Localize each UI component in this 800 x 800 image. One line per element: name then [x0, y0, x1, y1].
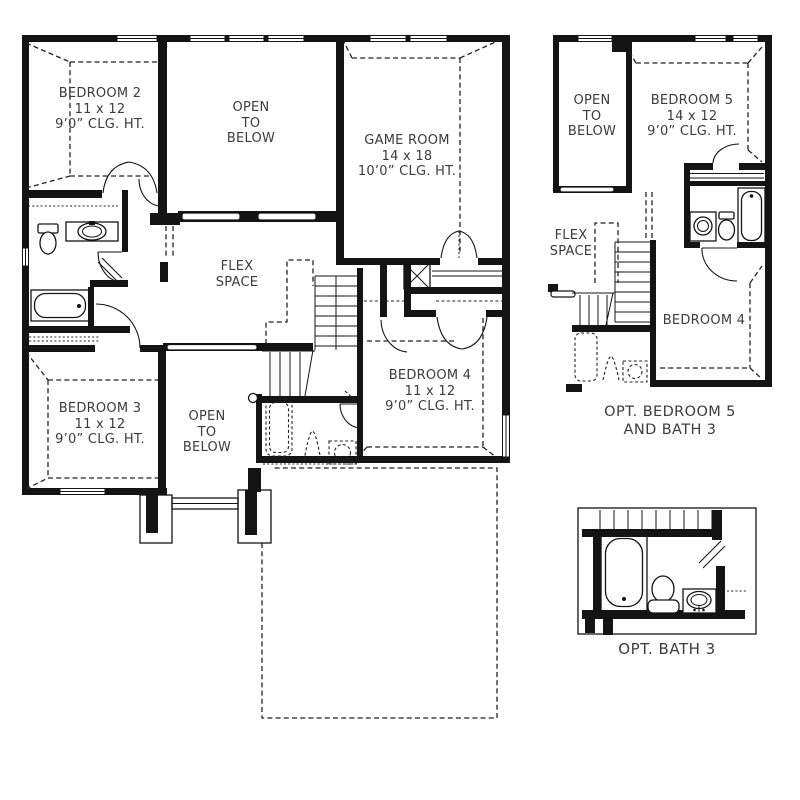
room-name: GAME ROOM: [358, 133, 456, 149]
label-line: TO: [568, 109, 616, 125]
room-ceiling: 9’0” CLG. HT.: [55, 432, 145, 448]
room-ceiling: 10’0” CLG. HT.: [358, 164, 456, 180]
room-name: BEDROOM 3: [55, 401, 145, 417]
walls-opt-bath3: [582, 510, 748, 635]
label-line: SPACE: [550, 244, 592, 260]
room-label-bedroom4: BEDROOM 4 11 x 12 9’0” CLG. HT.: [385, 368, 475, 415]
label-line: TO: [227, 116, 275, 132]
bathtub-fixture: [601, 534, 647, 611]
inset-label-bedroom5: BEDROOM 5 14 x 12 9’0” CLG. HT.: [647, 93, 737, 140]
room-name: BEDROOM 5: [647, 93, 737, 109]
dashed-toilet-fixture: [603, 356, 619, 380]
room-dims: 11 x 12: [385, 384, 475, 400]
label-line: BELOW: [183, 440, 231, 456]
roof-outline-dashed: [262, 468, 497, 718]
sink-fixture: [683, 589, 716, 613]
room-dims: 11 x 12: [55, 102, 145, 118]
toilet-fixture: [38, 224, 58, 254]
fixtures-opt-bath3: [601, 534, 716, 613]
label-line: OPEN: [227, 100, 275, 116]
label-line: SPACE: [216, 275, 258, 291]
room-name: BEDROOM 4: [663, 313, 746, 329]
inset-label-flex-space: FLEX SPACE: [550, 228, 592, 259]
label-line: FLEX: [550, 228, 592, 244]
stair-treads-opt-bath3: [600, 510, 712, 529]
room-label-open-to-below-upper: OPEN TO BELOW: [227, 100, 275, 147]
room-label-open-to-below-lower: OPEN TO BELOW: [183, 409, 231, 456]
label-line: TO: [183, 425, 231, 441]
room-label-bedroom3: BEDROOM 3 11 x 12 9’0” CLG. HT.: [55, 401, 145, 448]
room-dims: 14 x 12: [647, 109, 737, 125]
room-ceiling: 9’0” CLG. HT.: [55, 117, 145, 133]
inset-label-bedroom4: BEDROOM 4: [663, 313, 746, 329]
sink-fixture: [690, 212, 716, 241]
room-ceiling: 9’0” CLG. HT.: [647, 124, 737, 140]
stair-newel-post: [249, 394, 258, 403]
label-line: BELOW: [568, 124, 616, 140]
label-line: OPEN: [568, 93, 616, 109]
floor-plan-page: BEDROOM 2 11 x 12 9’0” CLG. HT. OPEN TO …: [0, 0, 800, 800]
room-ceiling: 9’0” CLG. HT.: [385, 399, 475, 415]
room-name: BEDROOM 2: [55, 86, 145, 102]
caption-line: AND BATH 3: [604, 422, 736, 440]
stairs-main: [166, 226, 357, 403]
room-label-game-room: GAME ROOM 14 x 18 10’0” CLG. HT.: [358, 133, 456, 180]
room-dims: 14 x 18: [358, 149, 456, 165]
caption-line: OPT. BATH 3: [618, 641, 715, 659]
toilet-fixture: [648, 576, 679, 613]
label-line: OPEN: [183, 409, 231, 425]
room-dims: 11 x 12: [55, 417, 145, 433]
room-label-bedroom2: BEDROOM 2 11 x 12 9’0” CLG. HT.: [55, 86, 145, 133]
room-label-flex-space: FLEX SPACE: [216, 259, 258, 290]
inset-opt-bedroom5: [548, 35, 772, 392]
inset-opt-bath3: [578, 508, 756, 635]
bathroom-fixtures-main: [25, 206, 118, 341]
dashed-fixtures-inset: [575, 333, 647, 382]
bathtub-fixture: [31, 290, 89, 321]
sink-fixture: [66, 221, 118, 241]
room-name: BEDROOM 4: [385, 368, 475, 384]
toilet-fixture: [719, 212, 735, 240]
porch-columns: [140, 490, 271, 543]
inset-caption-opt-bath3: OPT. BATH 3: [618, 641, 715, 659]
inset-label-open-to-below: OPEN TO BELOW: [568, 93, 616, 140]
bathtub-fixture: [738, 188, 765, 244]
label-line: FLEX: [216, 259, 258, 275]
caption-line: OPT. BEDROOM 5: [604, 404, 736, 422]
inset-caption-opt-bedroom5: OPT. BEDROOM 5 AND BATH 3: [604, 404, 736, 439]
label-line: BELOW: [227, 131, 275, 147]
